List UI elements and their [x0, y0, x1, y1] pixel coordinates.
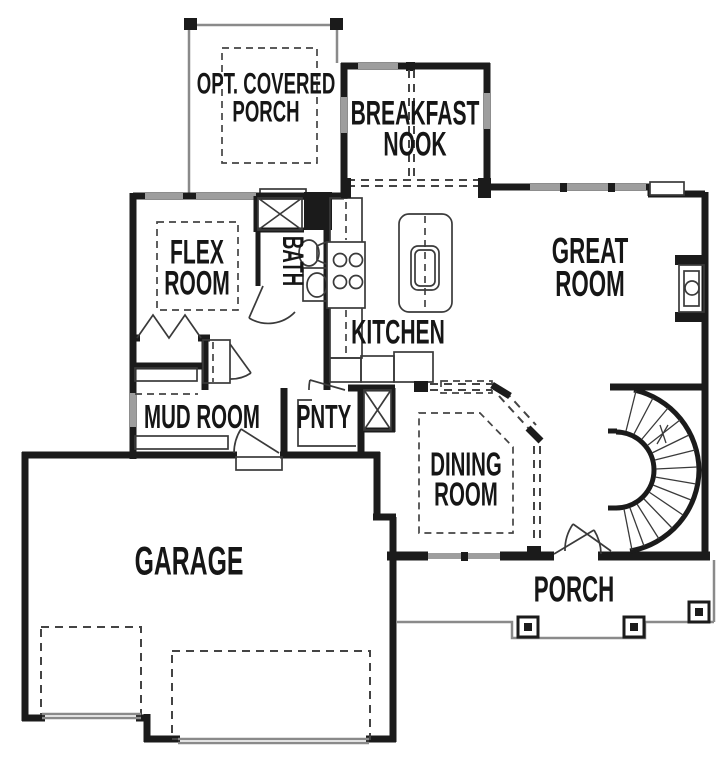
stair-break-mark [657, 425, 668, 444]
wall-niche [650, 182, 684, 195]
garage-door [42, 714, 141, 718]
room-label-breakfast-nook: BREAKFAST NOOK [351, 99, 480, 162]
porch-post [330, 18, 343, 30]
front-door-swing [554, 530, 601, 554]
stair-treads [624, 391, 697, 550]
kitchen-counter [361, 356, 394, 382]
coat-closet [359, 388, 395, 432]
room-label-opt-covered-porch: OPT. COVERED PORCH [197, 70, 335, 125]
garage-bay-dashed [41, 627, 141, 714]
kitchen-counter [394, 352, 433, 382]
porch-column [518, 617, 538, 637]
curved-staircase [565, 390, 699, 551]
entry-step [236, 457, 282, 470]
porch-post [184, 18, 197, 30]
room-label-garage: GARAGE [135, 544, 244, 581]
bench [135, 436, 228, 449]
garage-entry-door [234, 429, 282, 470]
linen-closet [258, 198, 302, 230]
room-label-flex-room: FLEX ROOM [164, 238, 230, 301]
kitchen-fixtures [327, 198, 492, 393]
garage-door [178, 739, 369, 743]
kitchen-island [399, 214, 452, 312]
understair-door-swing [565, 524, 611, 551]
room-label-mud-room: MUD ROOM [144, 402, 260, 432]
floor-plan: OPT. COVERED PORCH BREAKFAST NOOK FLEX R… [0, 0, 721, 768]
optional-counter-dashed [441, 381, 492, 393]
room-label-dining-room: DINING ROOM [430, 450, 502, 511]
range-stove [327, 242, 365, 308]
hall-closet [203, 340, 251, 383]
porch-column [624, 617, 644, 637]
porch-column [689, 602, 709, 622]
kitchen-counter [330, 358, 361, 382]
bath-door-swing [249, 286, 295, 323]
room-label-kitchen: KITCHEN [351, 317, 445, 348]
room-label-porch: PORCH [534, 572, 615, 605]
flex-room-double-door [137, 315, 201, 338]
room-label-pantry: PNTY [297, 402, 352, 432]
garage-bay-dashed [172, 651, 370, 739]
exterior-walls [22, 62, 710, 742]
room-label-bath: BATH [278, 236, 306, 286]
wall-chase [304, 192, 332, 230]
lockers [135, 368, 197, 381]
garage-doors [41, 627, 370, 743]
room-label-great-room: GREAT ROOM [552, 234, 628, 300]
